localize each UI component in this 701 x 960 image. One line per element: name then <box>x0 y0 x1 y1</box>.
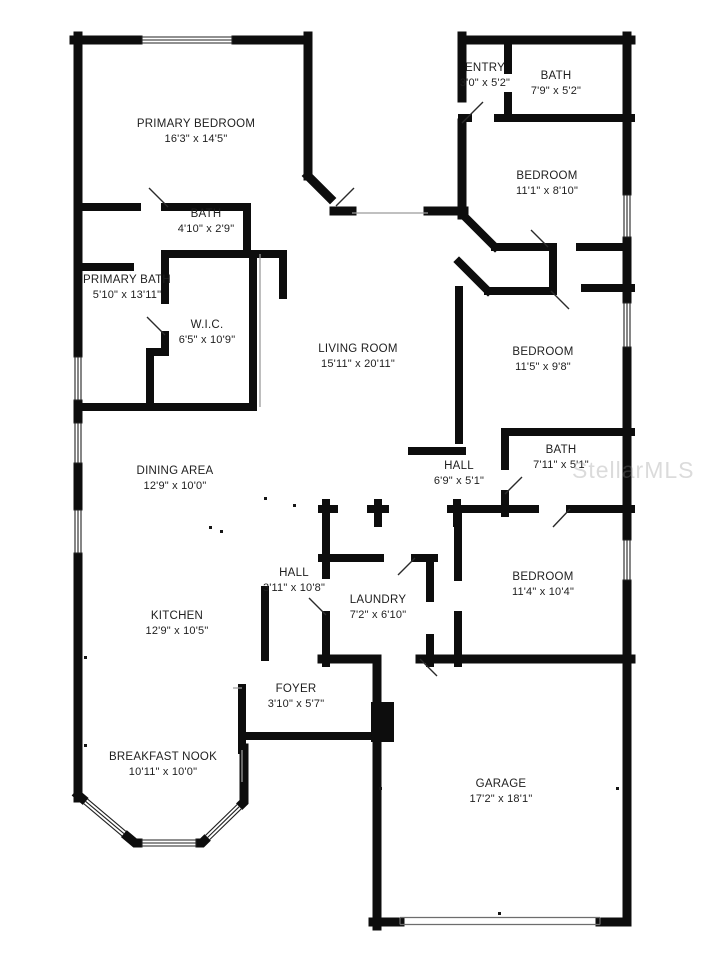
room-name: LAUNDRY <box>350 593 407 608</box>
door-leaves-layer <box>147 102 570 676</box>
room-label-breakfast-nook-17: BREAKFAST NOOK10'11" x 10'0" <box>109 750 217 780</box>
room-name: FOYER <box>268 682 325 697</box>
room-name: BEDROOM <box>516 169 578 184</box>
room-dimensions: 12'9" x 10'5" <box>146 624 209 639</box>
bay-window-right <box>206 805 242 840</box>
room-dimensions: 7'9" x 5'2" <box>531 84 581 99</box>
room-dimensions: 6'5" x 10'9" <box>179 333 236 348</box>
room-dimensions: 6'9" x 5'1" <box>434 474 484 489</box>
room-label-foyer-16: FOYER3'10" x 5'7" <box>268 682 325 712</box>
room-name: HALL <box>434 459 484 474</box>
room-label-kitchen-13: KITCHEN12'9" x 10'5" <box>146 609 209 639</box>
room-label-garage-18: GARAGE17'2" x 18'1" <box>470 777 533 807</box>
room-dimensions: 3'11" x 10'8" <box>263 581 325 596</box>
windows-layer <box>74 36 632 848</box>
room-name: ENTRY <box>460 61 510 76</box>
room-dimensions: 4'10" x 2'9" <box>178 222 235 237</box>
room-label-bedroom-8: BEDROOM11'5" x 9'8" <box>512 345 573 375</box>
room-label-entry-5: ENTRY3'0" x 5'2" <box>460 61 510 91</box>
room-name: BATH <box>531 69 581 84</box>
room-dimensions: 11'4" x 10'4" <box>512 585 574 600</box>
garage-door-line <box>400 918 600 925</box>
room-label-hall-12: HALL3'11" x 10'8" <box>263 566 325 596</box>
room-name: PRIMARY BATH <box>83 273 171 288</box>
window <box>74 423 83 463</box>
bay-window-bottom <box>142 839 196 848</box>
room-dimensions: 3'10" x 5'7" <box>268 697 325 712</box>
room-name: KITCHEN <box>146 609 209 624</box>
room-label-primary-bedroom-0: PRIMARY BEDROOM16'3" x 14'5" <box>137 117 255 147</box>
room-dimensions: 11'1" x 8'10" <box>516 184 578 199</box>
room-name: W.I.C. <box>179 318 236 333</box>
room-label-dining-area-11: DINING AREA12'9" x 10'0" <box>137 464 214 494</box>
room-name: PRIMARY BEDROOM <box>137 117 255 132</box>
room-dimensions: 7'2" x 6'10" <box>350 608 407 623</box>
room-label-primary-bath-2: PRIMARY BATH5'10" x 13'11" <box>83 273 171 303</box>
room-label-hall-10: HALL6'9" x 5'1" <box>434 459 484 489</box>
room-label-living-room-4: LIVING ROOM15'11" x 20'11" <box>318 342 397 372</box>
room-name: BEDROOM <box>512 570 574 585</box>
room-dimensions: 16'3" x 14'5" <box>137 132 255 147</box>
garage-pillar <box>371 702 394 742</box>
floor-plan-image: PRIMARY BEDROOM16'3" x 14'5"BATH4'10" x … <box>0 0 701 960</box>
room-name: LIVING ROOM <box>318 342 397 357</box>
room-label-bath-6: BATH7'9" x 5'2" <box>531 69 581 99</box>
room-name: BATH <box>178 207 235 222</box>
room-dimensions: 3'0" x 5'2" <box>460 76 510 91</box>
room-label-bedroom-15: BEDROOM11'4" x 10'4" <box>512 570 574 600</box>
window <box>623 540 632 580</box>
room-name: BEDROOM <box>512 345 573 360</box>
room-dimensions: 17'2" x 18'1" <box>470 792 533 807</box>
window <box>623 195 632 237</box>
room-dimensions: 15'11" x 20'11" <box>318 357 397 372</box>
room-name: HALL <box>263 566 325 581</box>
window <box>623 303 632 347</box>
room-label-laundry-14: LAUNDRY7'2" x 6'10" <box>350 593 407 623</box>
room-label-bath-1: BATH4'10" x 2'9" <box>178 207 235 237</box>
room-name: BREAKFAST NOOK <box>109 750 217 765</box>
watermark: StellarMLS <box>572 457 701 484</box>
room-dimensions: 5'10" x 13'11" <box>83 288 171 303</box>
bay-window-left <box>84 799 126 836</box>
room-dimensions: 11'5" x 9'8" <box>512 360 573 375</box>
window <box>74 357 83 400</box>
room-label-bedroom-7: BEDROOM11'1" x 8'10" <box>516 169 578 199</box>
room-label-w-i-c-3: W.I.C.6'5" x 10'9" <box>179 318 236 348</box>
window <box>142 36 232 45</box>
room-dimensions: 10'11" x 10'0" <box>109 765 217 780</box>
room-dimensions: 12'9" x 10'0" <box>137 479 214 494</box>
window <box>74 510 83 553</box>
room-name: GARAGE <box>470 777 533 792</box>
room-name: DINING AREA <box>137 464 214 479</box>
